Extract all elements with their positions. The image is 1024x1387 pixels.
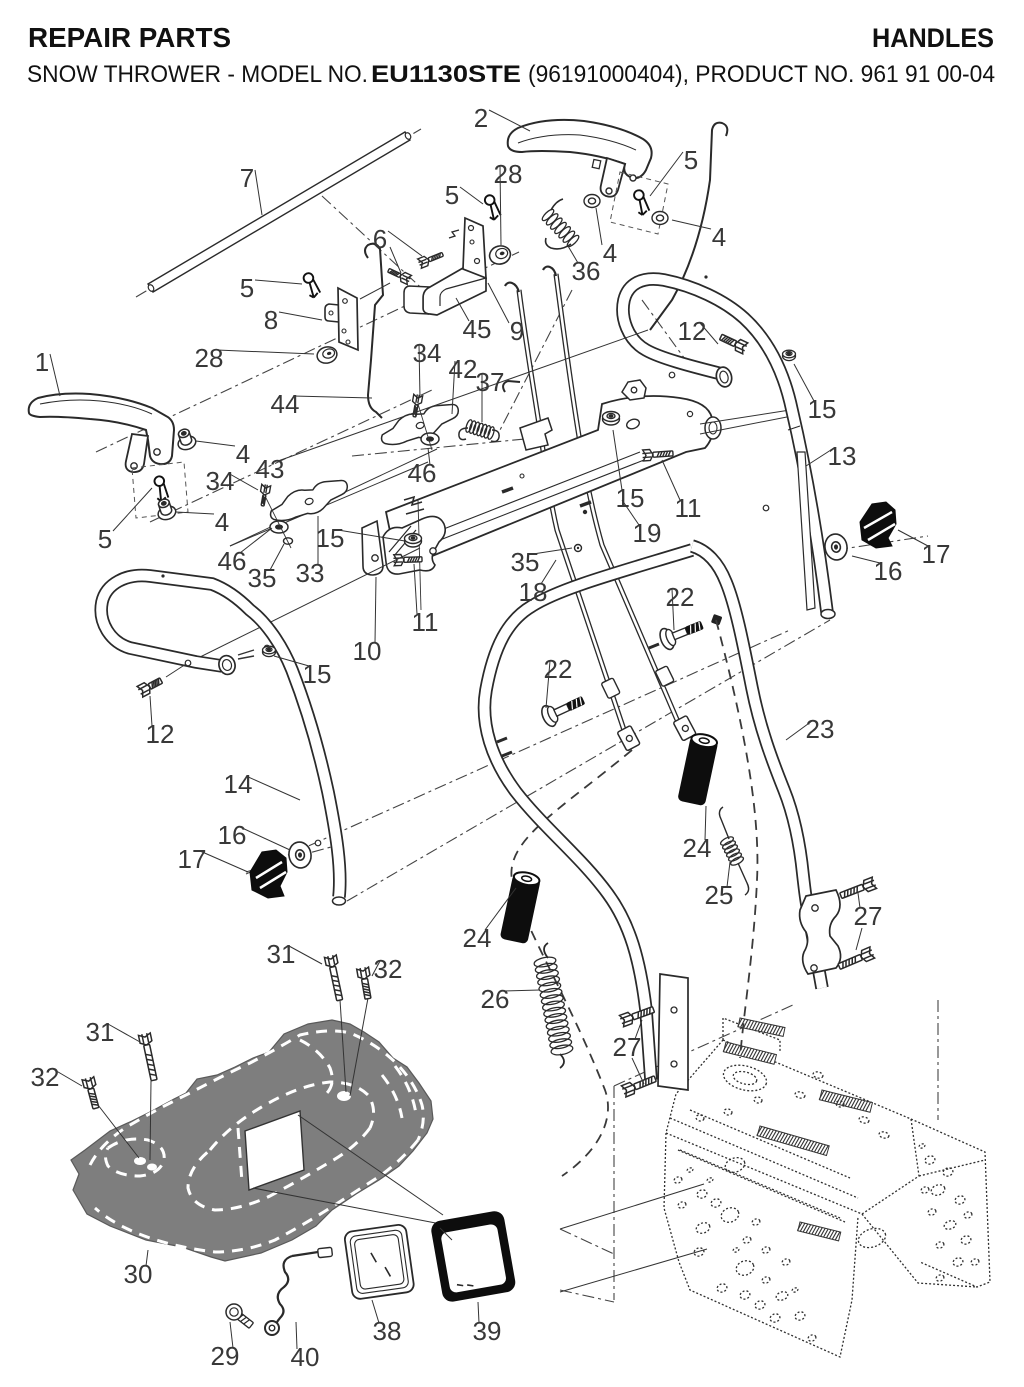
svg-text:35: 35 (511, 547, 540, 577)
svg-text:2: 2 (474, 103, 488, 133)
svg-text:22: 22 (666, 582, 695, 612)
svg-text:17: 17 (922, 539, 951, 569)
svg-text:23: 23 (806, 714, 835, 744)
svg-text:26: 26 (481, 984, 510, 1014)
svg-text:15: 15 (616, 483, 645, 513)
svg-text:HANDLES: HANDLES (872, 23, 994, 53)
svg-text:14: 14 (224, 769, 253, 799)
svg-text:REPAIR PARTS: REPAIR PARTS (28, 22, 231, 53)
svg-text:40: 40 (291, 1342, 320, 1372)
svg-text:1: 1 (35, 347, 49, 377)
svg-text:35: 35 (248, 563, 277, 593)
svg-text:8: 8 (264, 305, 278, 335)
svg-text:12: 12 (678, 316, 707, 346)
svg-text:36: 36 (572, 256, 601, 286)
svg-text:5: 5 (445, 180, 459, 210)
svg-text:34: 34 (206, 466, 235, 496)
svg-text:11: 11 (675, 493, 702, 523)
svg-text:31: 31 (267, 939, 296, 969)
svg-text:(96191000404), PRODUCT NO. 961: (96191000404), PRODUCT NO. 961 91 00-04 (528, 61, 995, 88)
svg-text:5: 5 (240, 273, 254, 303)
svg-text:15: 15 (316, 523, 345, 553)
svg-text:46: 46 (218, 546, 247, 576)
svg-text:EU1130STE: EU1130STE (371, 61, 521, 88)
svg-text:25: 25 (705, 880, 734, 910)
svg-text:7: 7 (240, 163, 254, 193)
svg-text:31: 31 (86, 1017, 115, 1047)
svg-text:17: 17 (178, 844, 207, 874)
svg-text:15: 15 (303, 659, 332, 689)
svg-text:28: 28 (195, 343, 224, 373)
svg-text:32: 32 (374, 954, 403, 984)
svg-text:11: 11 (412, 607, 439, 637)
svg-text:27: 27 (854, 901, 883, 931)
svg-text:SNOW THROWER - MODEL NO.: SNOW THROWER - MODEL NO. (27, 61, 368, 88)
svg-text:4: 4 (603, 238, 617, 268)
svg-text:43: 43 (256, 454, 285, 484)
svg-text:12: 12 (146, 719, 175, 749)
svg-text:24: 24 (463, 923, 492, 953)
svg-text:5: 5 (684, 145, 698, 175)
svg-text:18: 18 (519, 577, 548, 607)
svg-text:38: 38 (373, 1316, 402, 1346)
svg-text:4: 4 (236, 439, 250, 469)
svg-text:16: 16 (218, 820, 247, 850)
svg-text:5: 5 (98, 524, 112, 554)
svg-text:13: 13 (828, 441, 857, 471)
svg-text:33: 33 (296, 558, 325, 588)
svg-text:34: 34 (413, 338, 442, 368)
svg-text:29: 29 (211, 1341, 240, 1371)
svg-text:32: 32 (31, 1062, 60, 1092)
svg-text:4: 4 (712, 222, 726, 252)
svg-text:39: 39 (473, 1316, 502, 1346)
svg-text:44: 44 (271, 389, 300, 419)
svg-text:28: 28 (494, 159, 523, 189)
svg-text:15: 15 (808, 394, 837, 424)
svg-text:30: 30 (124, 1259, 153, 1289)
svg-text:6: 6 (373, 224, 387, 254)
svg-text:22: 22 (544, 654, 573, 684)
svg-text:19: 19 (633, 518, 662, 548)
svg-text:16: 16 (874, 556, 903, 586)
svg-text:46: 46 (408, 458, 437, 488)
svg-text:45: 45 (463, 314, 492, 344)
svg-text:27: 27 (613, 1032, 642, 1062)
svg-text:10: 10 (353, 636, 382, 666)
svg-text:4: 4 (215, 507, 229, 537)
svg-text:9: 9 (510, 316, 524, 346)
svg-text:42: 42 (449, 354, 478, 384)
svg-text:24: 24 (683, 833, 712, 863)
